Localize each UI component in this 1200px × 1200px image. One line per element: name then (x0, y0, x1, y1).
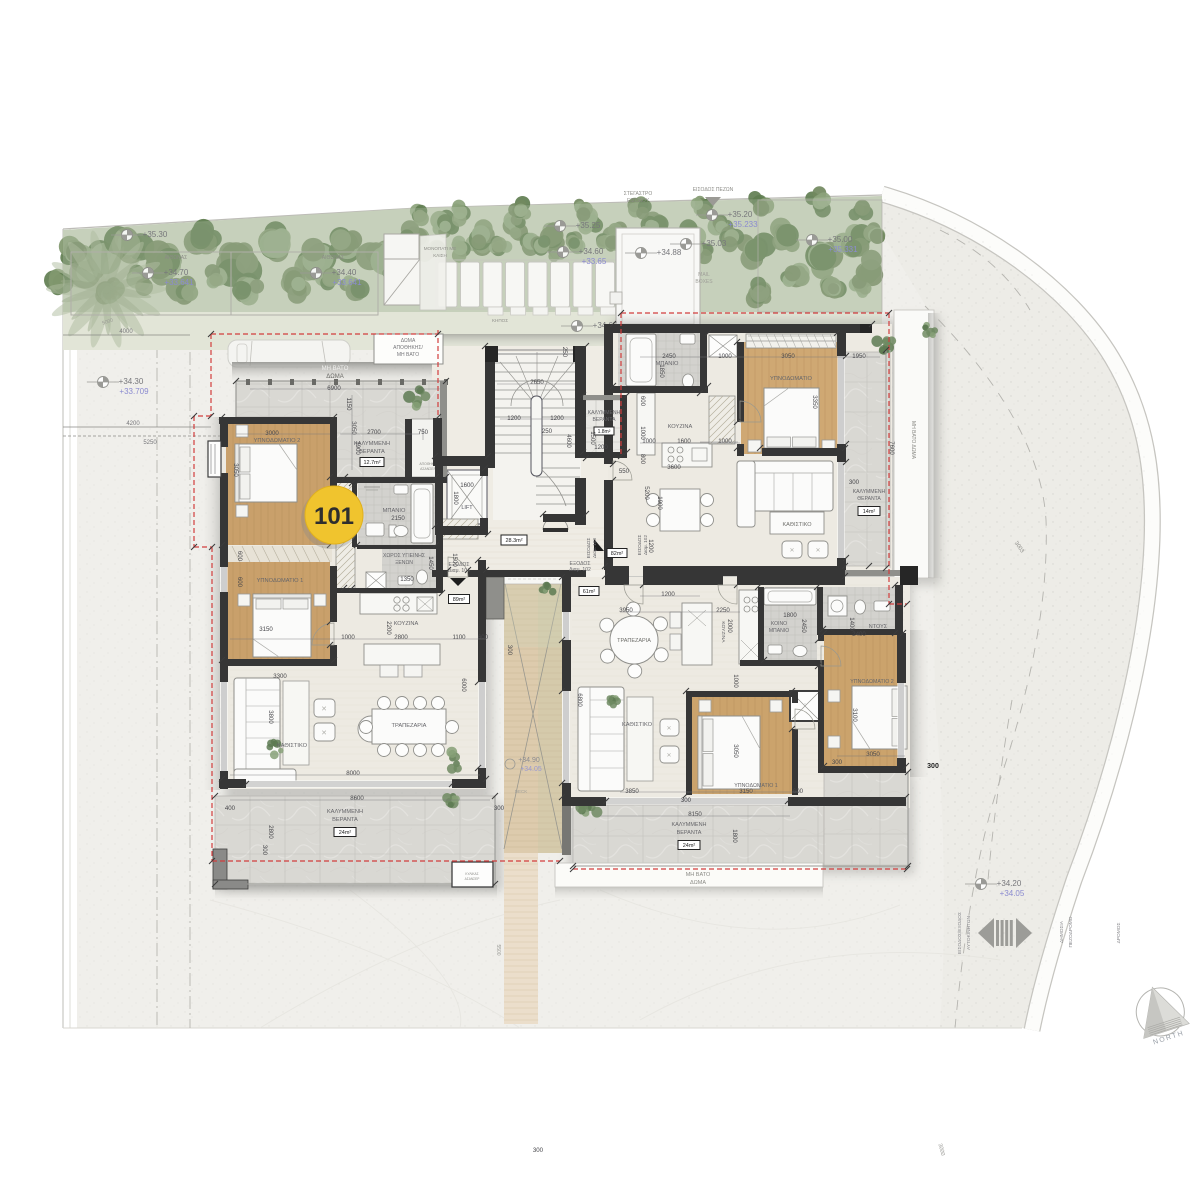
svg-text:600: 600 (236, 577, 243, 588)
svg-text:8150: 8150 (688, 811, 702, 818)
svg-text:1100: 1100 (452, 634, 466, 641)
svg-text:ΝΤΟΥΣ: ΝΤΟΥΣ (869, 624, 888, 630)
svg-text:+33.641: +33.641 (164, 278, 194, 287)
svg-text:89m²: 89m² (453, 597, 466, 603)
svg-text:ΕΙΣΟΔΟΣ ΠΕΖΩΝ: ΕΙΣΟΔΟΣ ΠΕΖΩΝ (693, 187, 734, 193)
svg-text:ΚΟΙΝΟ: ΚΟΙΝΟ (771, 621, 787, 627)
svg-text:1350: 1350 (400, 576, 414, 583)
svg-text:3050: 3050 (350, 421, 357, 435)
svg-text:ΜΠΑΝΙΟ: ΜΠΑΝΙΟ (769, 628, 789, 634)
svg-text:+34.30: +34.30 (119, 377, 144, 386)
svg-text:3000: 3000 (265, 430, 279, 437)
svg-text:ΜΗ ΒΑΤΟ: ΜΗ ΒΑΤΟ (686, 872, 711, 878)
svg-text:4600: 4600 (565, 434, 572, 448)
svg-text:Διαμ. 102: Διαμ. 102 (569, 567, 591, 573)
svg-text:1400: 1400 (848, 617, 855, 631)
svg-text:ΚΟΥΖΙΝΑ: ΚΟΥΖΙΝΑ (668, 424, 693, 430)
svg-text:ΑΙΘΩΝΑΣ: ΑΙΘΩΝΑΣ (322, 255, 344, 261)
svg-text:ΚΑΘΙΣΤΙΚΟ: ΚΑΘΙΣΤΙΚΟ (277, 743, 308, 749)
svg-text:3050: 3050 (732, 744, 739, 758)
svg-text:1.8m²: 1.8m² (598, 429, 611, 435)
svg-text:1850: 1850 (658, 364, 665, 378)
svg-text:ΚΟΥΖΙΝΑ: ΚΟΥΖΙΝΑ (720, 621, 726, 643)
svg-text:1500: 1500 (451, 553, 458, 567)
svg-text:800: 800 (639, 454, 646, 465)
svg-text:ΤΡΑΠΕΖΑΡΙΑ: ΤΡΑΠΕΖΑΡΙΑ (617, 638, 651, 644)
svg-text:300: 300 (494, 805, 505, 812)
svg-text:1000: 1000 (341, 634, 355, 641)
svg-text:ΚΑΘΙΣΤΙΚΟ: ΚΑΘΙΣΤΙΚΟ (782, 522, 812, 528)
svg-text:3600: 3600 (667, 464, 681, 471)
svg-text:14m²: 14m² (863, 509, 876, 515)
svg-text:+34.05: +34.05 (520, 766, 542, 773)
svg-text:+35.25: +35.25 (576, 221, 601, 230)
svg-text:DECK: DECK (515, 789, 528, 794)
svg-text:ΕΙΣΟΔΟΥ: ΕΙΣΟΔΟΥ (627, 198, 650, 204)
svg-text:750: 750 (418, 429, 429, 436)
svg-text:ΚΑΘΙΣΤΙΚΟ: ΚΑΘΙΣΤΙΚΟ (622, 722, 653, 728)
svg-text:550: 550 (619, 468, 630, 475)
svg-text:+35.00: +35.00 (828, 235, 853, 244)
svg-text:ΣΤΕΓΑΣΤΡΟ: ΣΤΕΓΑΣΤΡΟ (624, 191, 653, 197)
svg-text:6000: 6000 (460, 678, 467, 692)
svg-text:101: 101 (314, 503, 354, 530)
svg-text:ΑΣΑΝΣΕΡ: ΑΣΑΝΣΕΡ (465, 877, 480, 881)
svg-text:3300: 3300 (273, 673, 287, 680)
svg-text:ΞΕΝΩΝ: ΞΕΝΩΝ (395, 560, 413, 566)
svg-text:1450: 1450 (427, 556, 434, 570)
svg-text:ΔΩΜΑ: ΔΩΜΑ (690, 880, 706, 886)
svg-text:5500: 5500 (495, 944, 501, 955)
svg-text:✕: ✕ (321, 706, 327, 713)
svg-text:24m²: 24m² (683, 843, 696, 849)
svg-text:✕: ✕ (789, 548, 794, 554)
svg-text:ΒΕΡΑΝΤΑ: ΒΕΡΑΝΤΑ (332, 817, 358, 823)
svg-text:+34.40: +34.40 (332, 268, 357, 277)
svg-text:2450: 2450 (662, 353, 676, 360)
svg-text:Διαμ. 103: Διαμ. 103 (592, 538, 597, 558)
svg-text:+34.90: +34.90 (518, 757, 540, 764)
svg-text:ΚΑΛΥΜΜΕΝΗ: ΚΑΛΥΜΜΕΝΗ (853, 489, 886, 495)
svg-text:2200: 2200 (385, 621, 392, 635)
svg-text:3150: 3150 (739, 788, 753, 795)
svg-text:300: 300 (927, 763, 939, 770)
svg-text:ΧΩΡΟΣ ΥΓΙΕΙΝΗΣ: ΧΩΡΟΣ ΥΓΙΕΙΝΗΣ (383, 553, 425, 559)
svg-text:ΕΙΣΟΔΟΣ: ΕΙΣΟΔΟΣ (586, 538, 591, 559)
svg-text:1000: 1000 (718, 438, 732, 445)
svg-text:1200: 1200 (661, 591, 675, 598)
svg-text:300: 300 (261, 845, 268, 856)
svg-text:ΒΕΡΑΝΤΑ: ΒΕΡΑΝΤΑ (677, 830, 702, 836)
svg-text:2700: 2700 (367, 429, 381, 436)
svg-text:1000: 1000 (732, 674, 739, 688)
svg-text:3800: 3800 (267, 710, 274, 724)
svg-text:ΚΛΙΣΗ: ΚΛΙΣΗ (433, 253, 447, 258)
svg-text:300: 300 (849, 479, 860, 486)
svg-text:28.3m²: 28.3m² (505, 538, 522, 544)
svg-text:+35.20: +35.20 (728, 210, 753, 219)
svg-text:300: 300 (832, 759, 843, 766)
svg-text:1800: 1800 (783, 612, 797, 619)
svg-text:ΕΙΣΟΔΟΣ/ΕΞΟΔΟΣ: ΕΙΣΟΔΟΣ/ΕΞΟΔΟΣ (957, 912, 963, 954)
svg-text:✕: ✕ (666, 753, 671, 759)
svg-text:ΒΕΡΑΝΤΑ: ΒΕΡΑΝΤΑ (359, 449, 385, 455)
svg-text:3850: 3850 (625, 788, 639, 795)
svg-text:82m²: 82m² (611, 551, 624, 557)
svg-text:300: 300 (506, 645, 513, 656)
svg-text:1150: 1150 (345, 397, 352, 411)
svg-text:1000: 1000 (642, 438, 656, 445)
svg-text:600: 600 (639, 396, 646, 407)
svg-text:3150: 3150 (259, 626, 273, 633)
svg-text:3100: 3100 (851, 708, 858, 722)
svg-text:61m²: 61m² (583, 589, 596, 595)
svg-text:ΚΥΛΙΚΑΣ: ΚΥΛΙΚΑΣ (465, 872, 478, 876)
svg-text:ΚΗΠΟΣ: ΚΗΠΟΣ (492, 318, 508, 323)
svg-text:ΕΙΣΟΔΟΣ: ΕΙΣΟΔΟΣ (637, 535, 642, 556)
svg-text:ΜΗ ΒΑΤΟ ΔΩΜΑ: ΜΗ ΒΑΤΟ ΔΩΜΑ (910, 421, 916, 460)
svg-text:MAIL: MAIL (698, 272, 710, 278)
svg-text:+34.05: +34.05 (1000, 889, 1025, 898)
svg-text:6800: 6800 (576, 693, 583, 707)
svg-text:250: 250 (542, 428, 553, 435)
svg-text:250: 250 (561, 347, 568, 358)
svg-text:+34.20: +34.20 (997, 879, 1022, 888)
svg-text:ΜΠΑΝΙΟ: ΜΠΑΝΙΟ (383, 508, 406, 514)
svg-text:5200: 5200 (643, 486, 650, 500)
svg-text:3050: 3050 (232, 463, 239, 477)
svg-text:+34.88: +34.88 (657, 248, 682, 257)
svg-text:1800: 1800 (452, 491, 459, 505)
svg-text:8600: 8600 (350, 795, 364, 802)
svg-text:LIFT: LIFT (461, 505, 473, 511)
svg-text:6900: 6900 (327, 385, 341, 392)
svg-text:3350: 3350 (811, 395, 818, 409)
svg-text:2000: 2000 (726, 619, 733, 633)
svg-text:1200: 1200 (550, 415, 564, 422)
svg-text:ΑΣΑΝΣΕΡ: ΑΣΑΝΣΕΡ (420, 467, 436, 471)
svg-text:ΘΕΡΑΝΤΑ: ΘΕΡΑΝΤΑ (857, 496, 881, 502)
svg-text:ΔΗΜΟΣΙΑ: ΔΗΜΟΣΙΑ (1059, 920, 1065, 943)
svg-text:+33.709: +33.709 (119, 387, 149, 396)
svg-text:+33.641: +33.641 (332, 278, 362, 287)
svg-text:ΥΠΝΟΔΩΜΑΤΙΟ 2: ΥΠΝΟΔΩΜΑΤΙΟ 2 (850, 679, 894, 685)
svg-text:ΚΑΛΥΜΜΕΝΗ: ΚΑΛΥΜΜΕΝΗ (671, 822, 706, 828)
svg-text:+33.65: +33.65 (582, 257, 607, 266)
svg-text:8000: 8000 (346, 770, 360, 777)
svg-text:2150: 2150 (391, 515, 405, 522)
svg-text:+35.331: +35.331 (828, 245, 858, 254)
svg-text:BOXES: BOXES (695, 279, 713, 285)
svg-text:✕: ✕ (815, 548, 820, 554)
svg-text:ΑΥΤΟΚΙΝΗΤΩΝ: ΑΥΤΟΚΙΝΗΤΩΝ (966, 915, 972, 950)
svg-text:1600: 1600 (677, 438, 691, 445)
svg-text:2450: 2450 (800, 619, 807, 633)
svg-text:1800: 1800 (731, 829, 738, 843)
svg-text:✕: ✕ (321, 730, 327, 737)
svg-text:+35.233: +35.233 (728, 220, 758, 229)
svg-text:600: 600 (793, 788, 804, 795)
svg-text:5250: 5250 (143, 440, 157, 446)
svg-text:ΒΕΡΑΝΤΑ: ΒΕΡΑΝΤΑ (592, 417, 616, 423)
svg-text:ΜΗ ΒΑΤΟ: ΜΗ ΒΑΤΟ (397, 352, 419, 358)
svg-text:ΥΠΝΟΔΩΜΑΤΙΟ 1: ΥΠΝΟΔΩΜΑΤΙΟ 1 (257, 578, 304, 584)
svg-text:ΥΠΝΟΔΩΜΑΤΙΟ: ΥΠΝΟΔΩΜΑΤΙΟ (770, 376, 813, 382)
svg-text:3050: 3050 (866, 751, 880, 758)
svg-text:ΚΟΥΖΙΝΑ: ΚΟΥΖΙΝΑ (394, 621, 419, 627)
svg-text:ΑΠΟΘΗΚΗΣ/: ΑΠΟΘΗΚΗΣ/ (393, 345, 423, 351)
svg-text:+35.30: +35.30 (143, 230, 168, 239)
svg-text:4000: 4000 (119, 329, 133, 335)
svg-text:+34.60: +34.60 (579, 247, 604, 256)
svg-text:2650: 2650 (530, 379, 544, 386)
svg-text:3950: 3950 (619, 607, 633, 614)
svg-text:2250: 2250 (716, 607, 730, 614)
svg-text:4200: 4200 (126, 421, 140, 427)
svg-text:7600: 7600 (888, 441, 895, 455)
svg-text:+35.03: +35.03 (702, 239, 727, 248)
svg-text:2400: 2400 (852, 631, 866, 638)
svg-text:24m²: 24m² (339, 830, 352, 836)
svg-text:3050: 3050 (781, 353, 795, 360)
svg-text:+34.70: +34.70 (164, 268, 189, 277)
svg-text:ΜΟΝΟΠΑΤΙ ΜΕ: ΜΟΝΟΠΑΤΙ ΜΕ (424, 246, 457, 251)
svg-text:600: 600 (236, 551, 243, 562)
svg-text:1200: 1200 (594, 444, 608, 451)
svg-text:✕: ✕ (666, 726, 671, 732)
svg-text:ΜΗ ΒΑΤΟ: ΜΗ ΒΑΤΟ (322, 366, 349, 372)
svg-text:300: 300 (681, 797, 692, 804)
svg-text:ΥΠΝΟΔΩΜΑΤΙΟ 2: ΥΠΝΟΔΩΜΑΤΙΟ 2 (254, 438, 301, 444)
svg-text:12.7m²: 12.7m² (363, 460, 380, 466)
svg-text:ΠΕΖΟΔΡΟΜΟ: ΠΕΖΟΔΡΟΜΟ (1068, 916, 1074, 947)
svg-text:2800: 2800 (394, 634, 408, 641)
svg-text:300: 300 (533, 1147, 544, 1154)
svg-text:600: 600 (478, 634, 489, 641)
svg-text:1900: 1900 (354, 441, 361, 455)
svg-text:1200: 1200 (507, 415, 521, 422)
svg-text:ΔΩΜΑ: ΔΩΜΑ (401, 338, 416, 344)
svg-text:ΑΙΘΩΝΑΣ: ΑΙΘΩΝΑΣ (165, 255, 187, 261)
svg-text:1900: 1900 (656, 496, 663, 510)
svg-text:ΚΑΛΥΜΜΕΝΗ: ΚΑΛΥΜΜΕΝΗ (588, 410, 621, 416)
svg-text:ΔΡΟΜΟΣ: ΔΡΟΜΟΣ (1116, 923, 1122, 944)
svg-text:1600: 1600 (460, 482, 474, 489)
svg-text:ΤΡΑΠΕΖΑΡΙΑ: ΤΡΑΠΕΖΑΡΙΑ (392, 723, 427, 729)
svg-text:400: 400 (225, 805, 236, 812)
svg-text:1950: 1950 (852, 353, 866, 360)
svg-text:1200: 1200 (647, 539, 654, 553)
svg-text:1000: 1000 (718, 353, 732, 360)
svg-text:2800: 2800 (267, 825, 274, 839)
svg-text:ΚΑΛΥΜΜΕΝΗ: ΚΑΛΥΜΜΕΝΗ (327, 809, 363, 815)
